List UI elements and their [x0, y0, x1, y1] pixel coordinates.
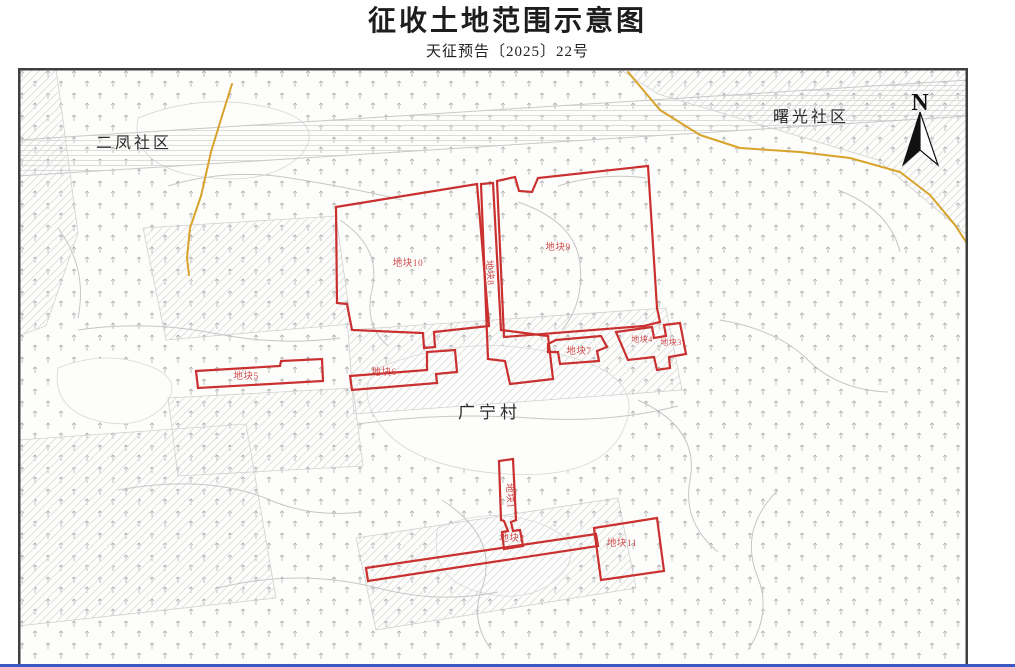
- parcel-label-2: 地块2: [499, 532, 524, 544]
- region-label-shuguang: 曙光社区: [773, 108, 849, 126]
- map-canvas: 地块10 地块8 地块9 地块7 地块4 地块3 地块5 地块6 地块1 地块2…: [18, 68, 968, 667]
- map-header: 征收土地范围示意图 天征预告〔2025〕22号: [0, 6, 1015, 61]
- village-label-guangning: 广宁村: [458, 403, 521, 422]
- parcel-label-11: 地块11: [607, 537, 637, 549]
- parcel-label-3: 地块3: [660, 337, 682, 347]
- parcel-label-9: 地块9: [545, 241, 570, 253]
- hatched-area: [168, 388, 363, 476]
- parcel-label-7: 地块7: [566, 345, 591, 357]
- parcel-label-5: 地块5: [233, 370, 258, 382]
- parcel-label-6: 地块6: [371, 366, 396, 378]
- region-label-erfeng: 二凤社区: [96, 134, 172, 152]
- page-title: 征收土地范围示意图: [0, 6, 1015, 38]
- page: 征收土地范围示意图 天征预告〔2025〕22号: [0, 0, 1015, 667]
- parcel-label-4: 地块4: [631, 334, 653, 344]
- page-subtitle: 天征预告〔2025〕22号: [0, 40, 1015, 61]
- parcel-label-10: 地块10: [393, 257, 424, 269]
- hatched-area: [143, 216, 351, 340]
- map-area: 地块10 地块8 地块9 地块7 地块4 地块3 地块5 地块6 地块1 地块2…: [18, 68, 968, 667]
